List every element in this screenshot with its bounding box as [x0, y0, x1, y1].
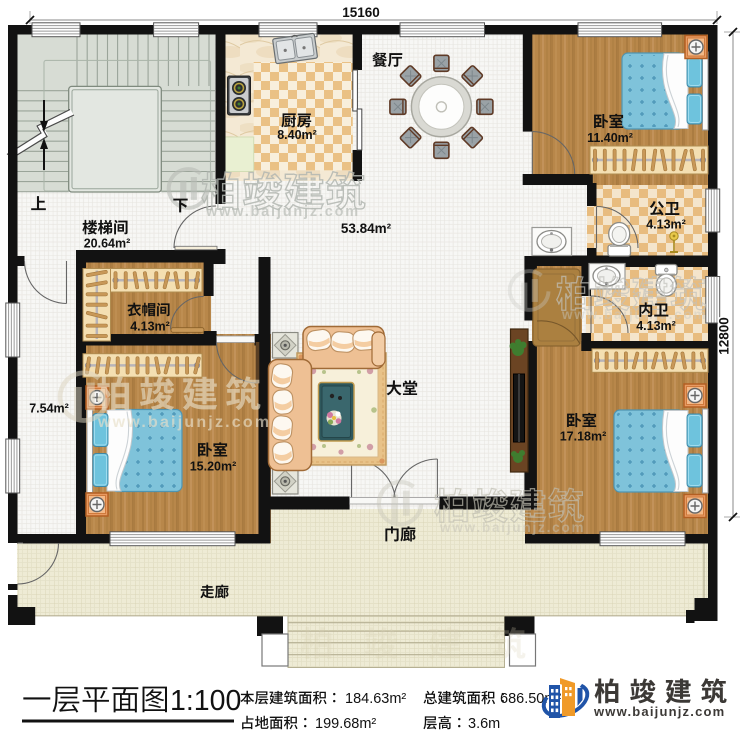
svg-text:7.54m²: 7.54m²	[29, 402, 69, 416]
svg-text:17.18m²: 17.18m²	[560, 430, 607, 444]
svg-text:8.40m²: 8.40m²	[277, 128, 317, 142]
svg-text:11.40m²: 11.40m²	[587, 131, 633, 145]
svg-text:199.68m²: 199.68m²	[315, 716, 376, 732]
svg-text:184.63m²: 184.63m²	[345, 691, 406, 707]
svg-text:20.64m²: 20.64m²	[84, 237, 131, 251]
svg-text:15160: 15160	[342, 5, 380, 20]
svg-text:4.13m²: 4.13m²	[636, 319, 676, 333]
svg-text:53.84m²: 53.84m²	[341, 221, 392, 236]
svg-text:www.baijunjz.com: www.baijunjz.com	[205, 204, 360, 220]
svg-text:www.baijunjz.com: www.baijunjz.com	[439, 520, 585, 535]
svg-text:1:100: 1:100	[170, 685, 241, 717]
svg-text:12800: 12800	[717, 317, 732, 355]
svg-text:www.baijunjz.com: www.baijunjz.com	[97, 414, 271, 431]
svg-text:15.20m²: 15.20m²	[190, 460, 237, 474]
svg-text:4.13m²: 4.13m²	[130, 320, 170, 334]
svg-text:www.baijunjz.com: www.baijunjz.com	[561, 307, 707, 322]
svg-text:3.6m: 3.6m	[468, 716, 500, 732]
svg-text:4.13m²: 4.13m²	[646, 218, 686, 232]
svg-text:www.baijunjz.com: www.baijunjz.com	[593, 704, 725, 719]
